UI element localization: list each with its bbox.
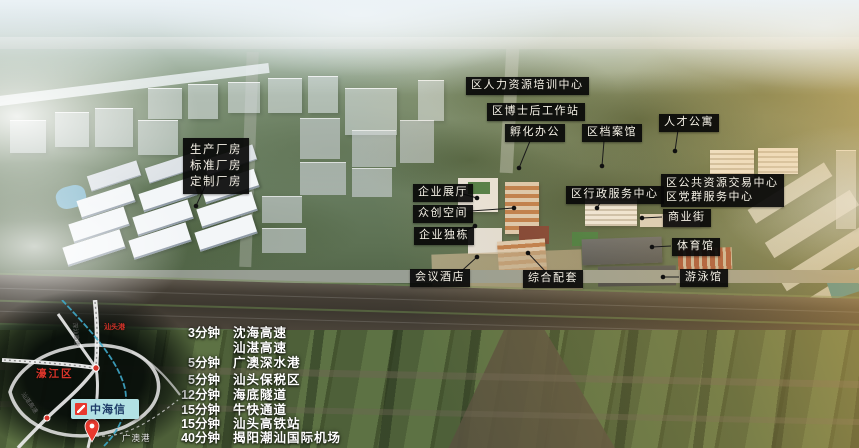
callout-incubation-office: 孵化办公 <box>505 124 565 142</box>
callout-postdoc-workstation: 区博士后工作站 <box>487 103 585 121</box>
map-inset-roads <box>0 300 185 448</box>
callout-district-archives: 区档案馆 <box>582 124 642 142</box>
travel-place: 广澳深水港 <box>233 356 301 370</box>
location-pin-icon <box>85 419 99 442</box>
callout-enterprise-building: 企业独栋 <box>414 227 474 245</box>
brand-name: 中海信 <box>90 401 126 417</box>
callout-factory-line1: 生产厂房 <box>190 142 242 158</box>
callout-enterprise-hall: 企业展厅 <box>413 184 473 202</box>
callout-factory-line3: 定制厂房 <box>190 174 242 190</box>
callout-party-mass-center: 区党群服务中心 <box>666 190 779 204</box>
travel-row: 40分钟揭阳潮汕国际机场 <box>180 427 341 446</box>
callout-hr-training-center: 区人力资源培训中心 <box>466 77 589 95</box>
map-port-label: 广澳港 <box>122 432 151 444</box>
callout-admin-service-center: 区行政服务中心 <box>566 186 664 204</box>
callout-public-resource-party: 区公共资源交易中心 区党群服务中心 <box>661 174 784 207</box>
brand-badge: 中海信 <box>71 399 139 419</box>
callout-factory: 生产厂房 标准厂房 定制厂房 <box>183 138 249 194</box>
callout-cocreate-space: 众创空间 <box>413 205 473 223</box>
travel-place: 揭阳潮汕国际机场 <box>233 431 341 445</box>
callout-natatorium: 游泳馆 <box>680 269 728 287</box>
callout-gymnasium: 体育馆 <box>672 238 720 256</box>
callout-talent-apartment: 人才公寓 <box>659 114 719 132</box>
callout-factory-line2: 标准厂房 <box>190 158 242 174</box>
callout-conference-hotel: 会议酒店 <box>410 269 470 287</box>
aerial-rendering-canvas: 生产厂房 标准厂房 定制厂房 区人力资源培训中心 区博士后工作站 孵化办公 区档… <box>0 0 859 448</box>
callout-commercial-street: 商业街 <box>663 209 711 227</box>
map-north-port-label: 汕头港 <box>104 322 125 332</box>
zhonghaixin-logo-icon <box>75 403 87 415</box>
callout-complex-support: 综合配套 <box>523 270 583 288</box>
callout-public-resource-center: 区公共资源交易中心 <box>666 176 779 190</box>
map-district-label: 濠江区 <box>36 366 74 381</box>
